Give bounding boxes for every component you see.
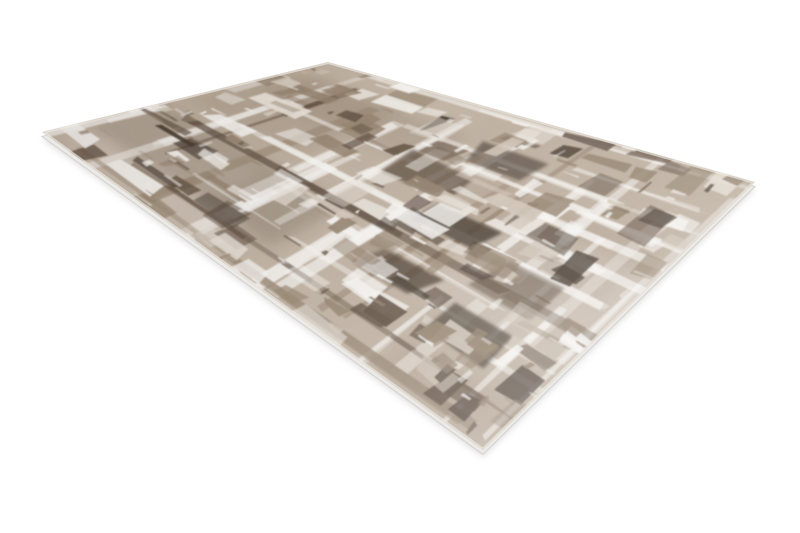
product-photo-stage: [0, 0, 800, 533]
rug-product-image: [0, 0, 800, 533]
